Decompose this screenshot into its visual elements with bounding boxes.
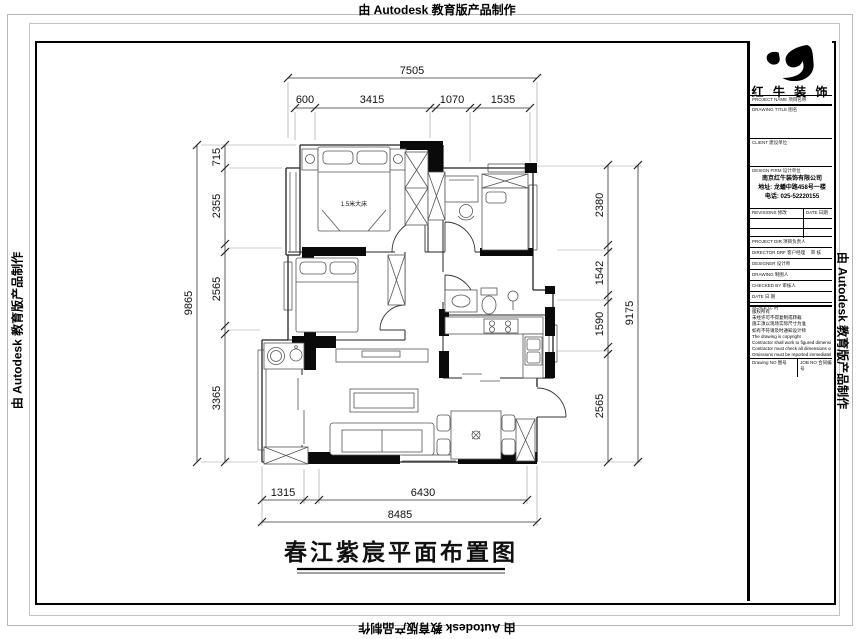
field-label: DESIGNER 设计师 <box>750 259 810 269</box>
drawing-title-cell: DRAWING TITLE 图名 <box>750 106 832 139</box>
dim-left-seg-0: 715 <box>211 148 223 166</box>
firm-phone: 电话: 025-52220155 <box>752 193 832 201</box>
signature-fields: PROJECT DIR 项目负责人 DIRECTOR DRF 客户经理 审 核 … <box>750 237 832 307</box>
field-row: DESIGNER 设计师 <box>750 259 832 270</box>
drawing-number-row: Drawing NO 图号 JOB NO 合同编号 <box>750 359 832 377</box>
dim-bottom-overall: 8485 <box>388 509 412 521</box>
field-value <box>810 237 832 247</box>
project-name-label: PROJECT NAME 项目名称 <box>750 96 832 105</box>
revisions-table: REVISIONS 修改 DATE 日期 <box>750 209 832 237</box>
dining-furniture <box>437 411 535 461</box>
bathroom-fixtures <box>445 288 518 314</box>
dim-right-seg-0: 2380 <box>594 193 606 217</box>
field-value <box>810 281 832 291</box>
sheet-title: 春江紫宸平面布置图 <box>283 539 518 573</box>
field-value <box>810 270 832 280</box>
dim-top-overall: 7505 <box>400 65 424 77</box>
floor-plan-svg: 7505 600 3415 1070 1535 9865 715 2355 25… <box>0 0 860 639</box>
field-row: DATE 日 期 <box>750 292 832 303</box>
dim-left-seg-1: 2355 <box>211 194 223 218</box>
copyright-notes: 版权所有 未经许可不得复制或转载 施工须以现场实际尺寸为准 如有不符请及时通知设… <box>750 307 832 359</box>
firm-name: 南京红牛装饰有限公司 <box>752 175 832 183</box>
revisions-date-label: DATE 日期 <box>804 209 832 218</box>
drawing-no-label: Drawing NO 图号 <box>750 359 798 377</box>
dim-left-overall: 9865 <box>183 291 195 315</box>
title-block-logo-section: 红 牛 装 饰 <box>750 41 832 96</box>
firm-address: 地址: 龙蟠中路458号一楼 <box>752 184 832 192</box>
field-row: PROJECT DIR 项目负责人 <box>750 237 832 248</box>
field-value <box>810 292 832 302</box>
field-row: DRAWING 制图人 <box>750 270 832 281</box>
sheet-title-text: 春江紫宸平面布置图 <box>283 539 518 565</box>
dim-bottom-seg-1: 6430 <box>411 487 435 499</box>
revisions-empty-row <box>750 219 832 229</box>
red-bull-logo-icon <box>758 43 824 81</box>
field-row: DIRECTOR DRF 客户经理 审 核 <box>750 248 832 259</box>
note-line: Omissions must be reported immediately t… <box>752 352 831 358</box>
field-value <box>810 259 832 269</box>
dim-right-overall: 9175 <box>624 301 636 325</box>
design-firm-cell: DESIGN FIRM 设计单位 南京红牛装饰有限公司 地址: 龙蟠中路458号… <box>750 167 832 209</box>
field-label: DRAWING 制图人 <box>750 270 810 280</box>
field-row: CHECKED BY 审核人 <box>750 281 832 292</box>
dim-right-seg-3: 2565 <box>594 394 606 418</box>
kitchen-fixtures <box>445 317 543 381</box>
field-label: DATE 日 期 <box>750 292 810 302</box>
field-label: DIRECTOR DRF 客户经理 <box>750 248 810 258</box>
revisions-label: REVISIONS 修改 <box>750 209 804 218</box>
design-firm-label: DESIGN FIRM 设计单位 <box>752 168 801 173</box>
field-value: 审 核 <box>810 248 832 258</box>
dim-top-seg-1: 3415 <box>360 94 384 106</box>
client-cell: CLIENT 建设单位 <box>750 139 832 167</box>
dim-left-seg-2: 2565 <box>211 277 223 301</box>
dim-right-seg-1: 1542 <box>594 261 606 285</box>
revisions-header-row: REVISIONS 修改 DATE 日期 <box>750 209 832 219</box>
job-no-label: JOB NO 合同编号 <box>798 359 832 377</box>
field-label: CHECKED BY 审核人 <box>750 281 810 291</box>
client-label: CLIENT 建设单位 <box>752 140 787 145</box>
field-label: PROJECT DIR 项目负责人 <box>750 237 810 247</box>
dim-right-seg-2: 1590 <box>594 312 606 336</box>
dim-top-seg-2: 1070 <box>440 94 464 106</box>
living-room-furniture <box>330 349 434 455</box>
dim-bottom-seg-0: 1315 <box>271 487 295 499</box>
drawing-title-label: DRAWING TITLE 图名 <box>752 107 797 112</box>
title-block: 红 牛 装 饰 PROJECT NAME 项目名称 DRAWING TITLE … <box>747 41 832 601</box>
second-bedroom-furniture <box>296 255 405 332</box>
dim-top-seg-3: 1535 <box>491 94 515 106</box>
dim-left-seg-3: 3365 <box>211 386 223 410</box>
master-bedroom-furniture <box>302 147 428 231</box>
balcony-laundry <box>264 343 308 464</box>
dim-top-seg-0: 600 <box>296 94 314 106</box>
master-bed-label: 1.5米大床 <box>341 200 367 208</box>
